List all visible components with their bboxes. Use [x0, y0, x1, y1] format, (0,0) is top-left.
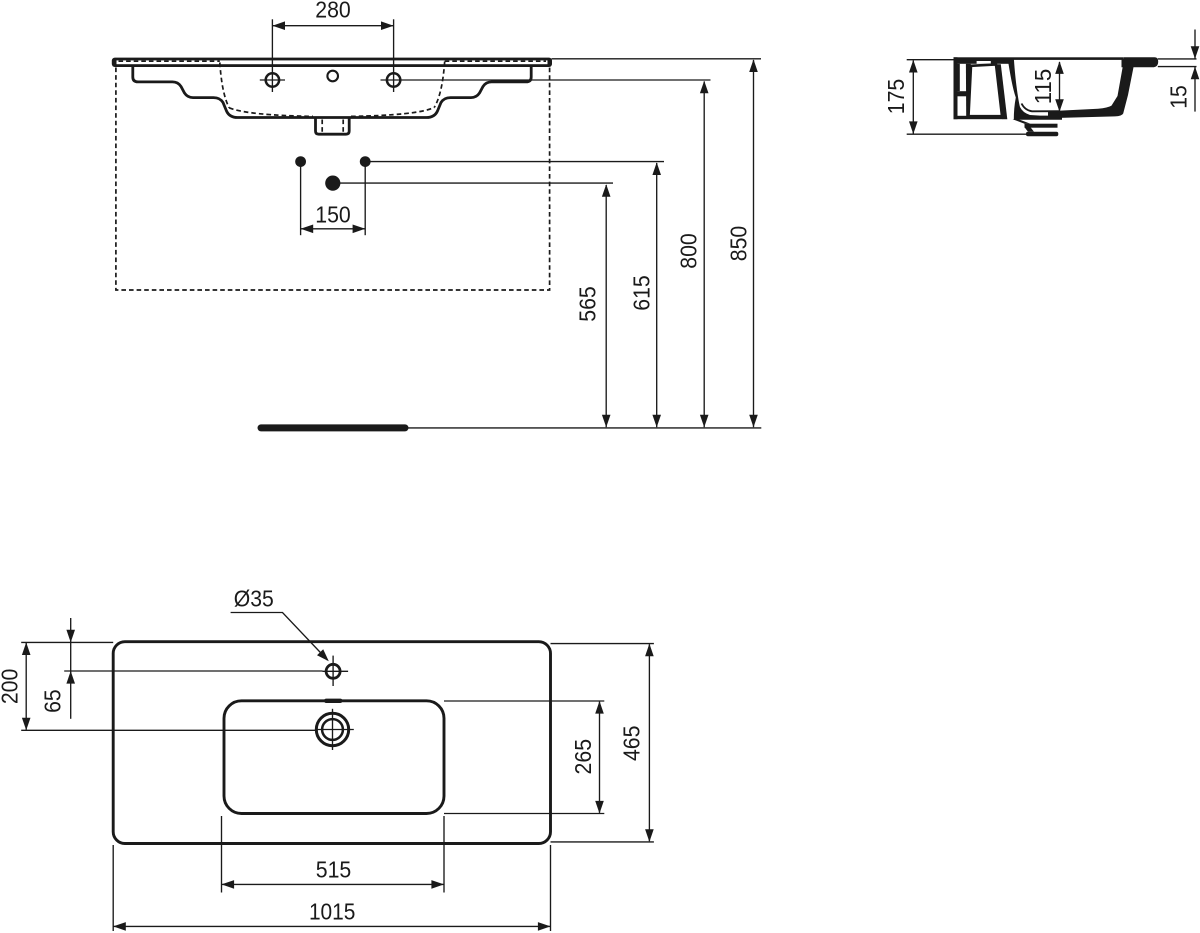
svg-text:Ø35: Ø35	[234, 585, 274, 611]
svg-text:565: 565	[575, 286, 601, 322]
svg-text:280: 280	[315, 0, 351, 23]
svg-text:615: 615	[629, 275, 655, 311]
svg-text:1015: 1015	[309, 899, 356, 925]
svg-text:200: 200	[0, 669, 23, 705]
svg-text:150: 150	[315, 202, 351, 228]
svg-text:15: 15	[1166, 85, 1192, 109]
svg-text:65: 65	[40, 689, 66, 713]
svg-text:515: 515	[316, 857, 352, 883]
svg-text:850: 850	[725, 226, 751, 262]
svg-text:465: 465	[618, 726, 644, 762]
svg-text:115: 115	[1030, 69, 1056, 105]
svg-text:175: 175	[883, 79, 909, 115]
svg-text:265: 265	[570, 739, 596, 775]
svg-text:800: 800	[676, 233, 702, 269]
